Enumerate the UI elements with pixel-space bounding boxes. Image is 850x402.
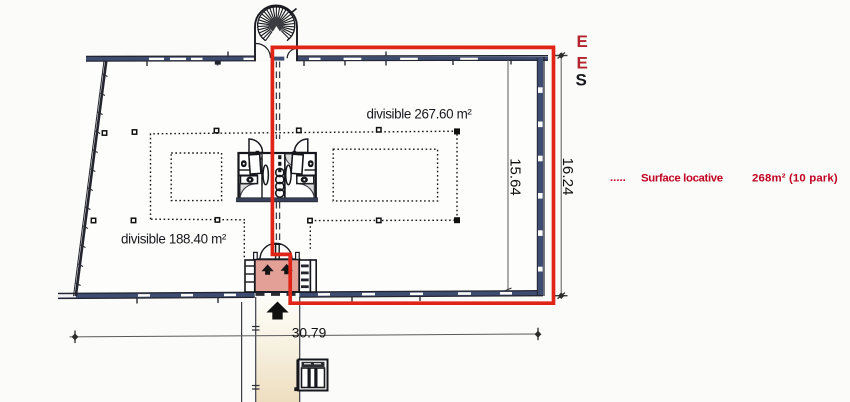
svg-text:268m² (10 park): 268m² (10 park) [752,173,838,185]
svg-text:S: S [576,71,587,90]
svg-text:30.79: 30.79 [292,326,327,341]
svg-text:Surface locative: Surface locative [641,173,723,185]
svg-text:.....: ..... [610,172,626,184]
svg-text:divisible 188.40 m²: divisible 188.40 m² [121,232,227,247]
svg-text:15.64: 15.64 [507,158,524,196]
svg-text:divisible 267.60 m²: divisible 267.60 m² [367,107,473,122]
svg-text:16.24: 16.24 [559,157,576,195]
svg-text:E: E [577,32,588,51]
